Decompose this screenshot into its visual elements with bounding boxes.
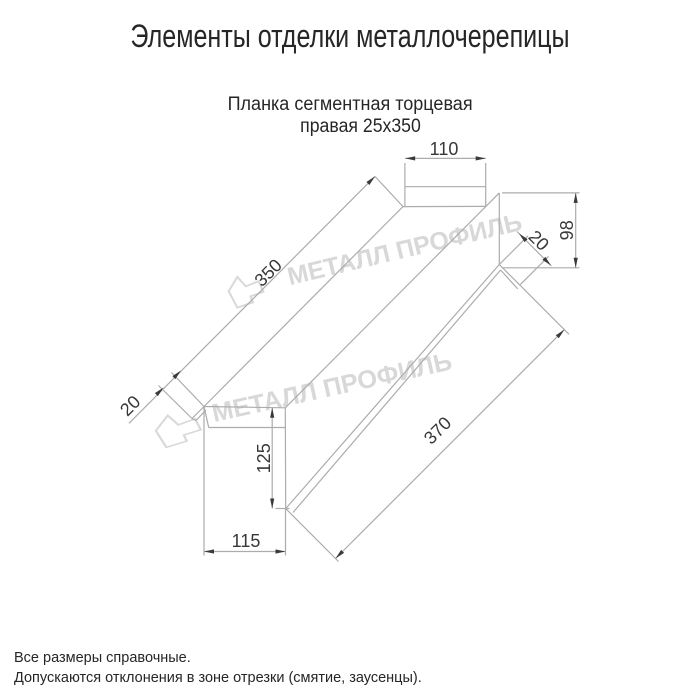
svg-text:110: 110 bbox=[430, 139, 459, 159]
svg-text:350: 350 bbox=[251, 255, 286, 290]
svg-text:125: 125 bbox=[254, 443, 274, 473]
svg-text:98: 98 bbox=[557, 220, 577, 240]
svg-text:МЕТАЛЛ ПРОФИЛЬ: МЕТАЛЛ ПРОФИЛЬ bbox=[285, 208, 525, 291]
svg-text:370: 370 bbox=[420, 413, 455, 448]
svg-text:МЕТАЛЛ ПРОФИЛЬ: МЕТАЛЛ ПРОФИЛЬ bbox=[209, 348, 454, 428]
svg-text:20: 20 bbox=[525, 226, 553, 254]
svg-text:20: 20 bbox=[116, 392, 144, 420]
svg-text:115: 115 bbox=[232, 531, 261, 551]
